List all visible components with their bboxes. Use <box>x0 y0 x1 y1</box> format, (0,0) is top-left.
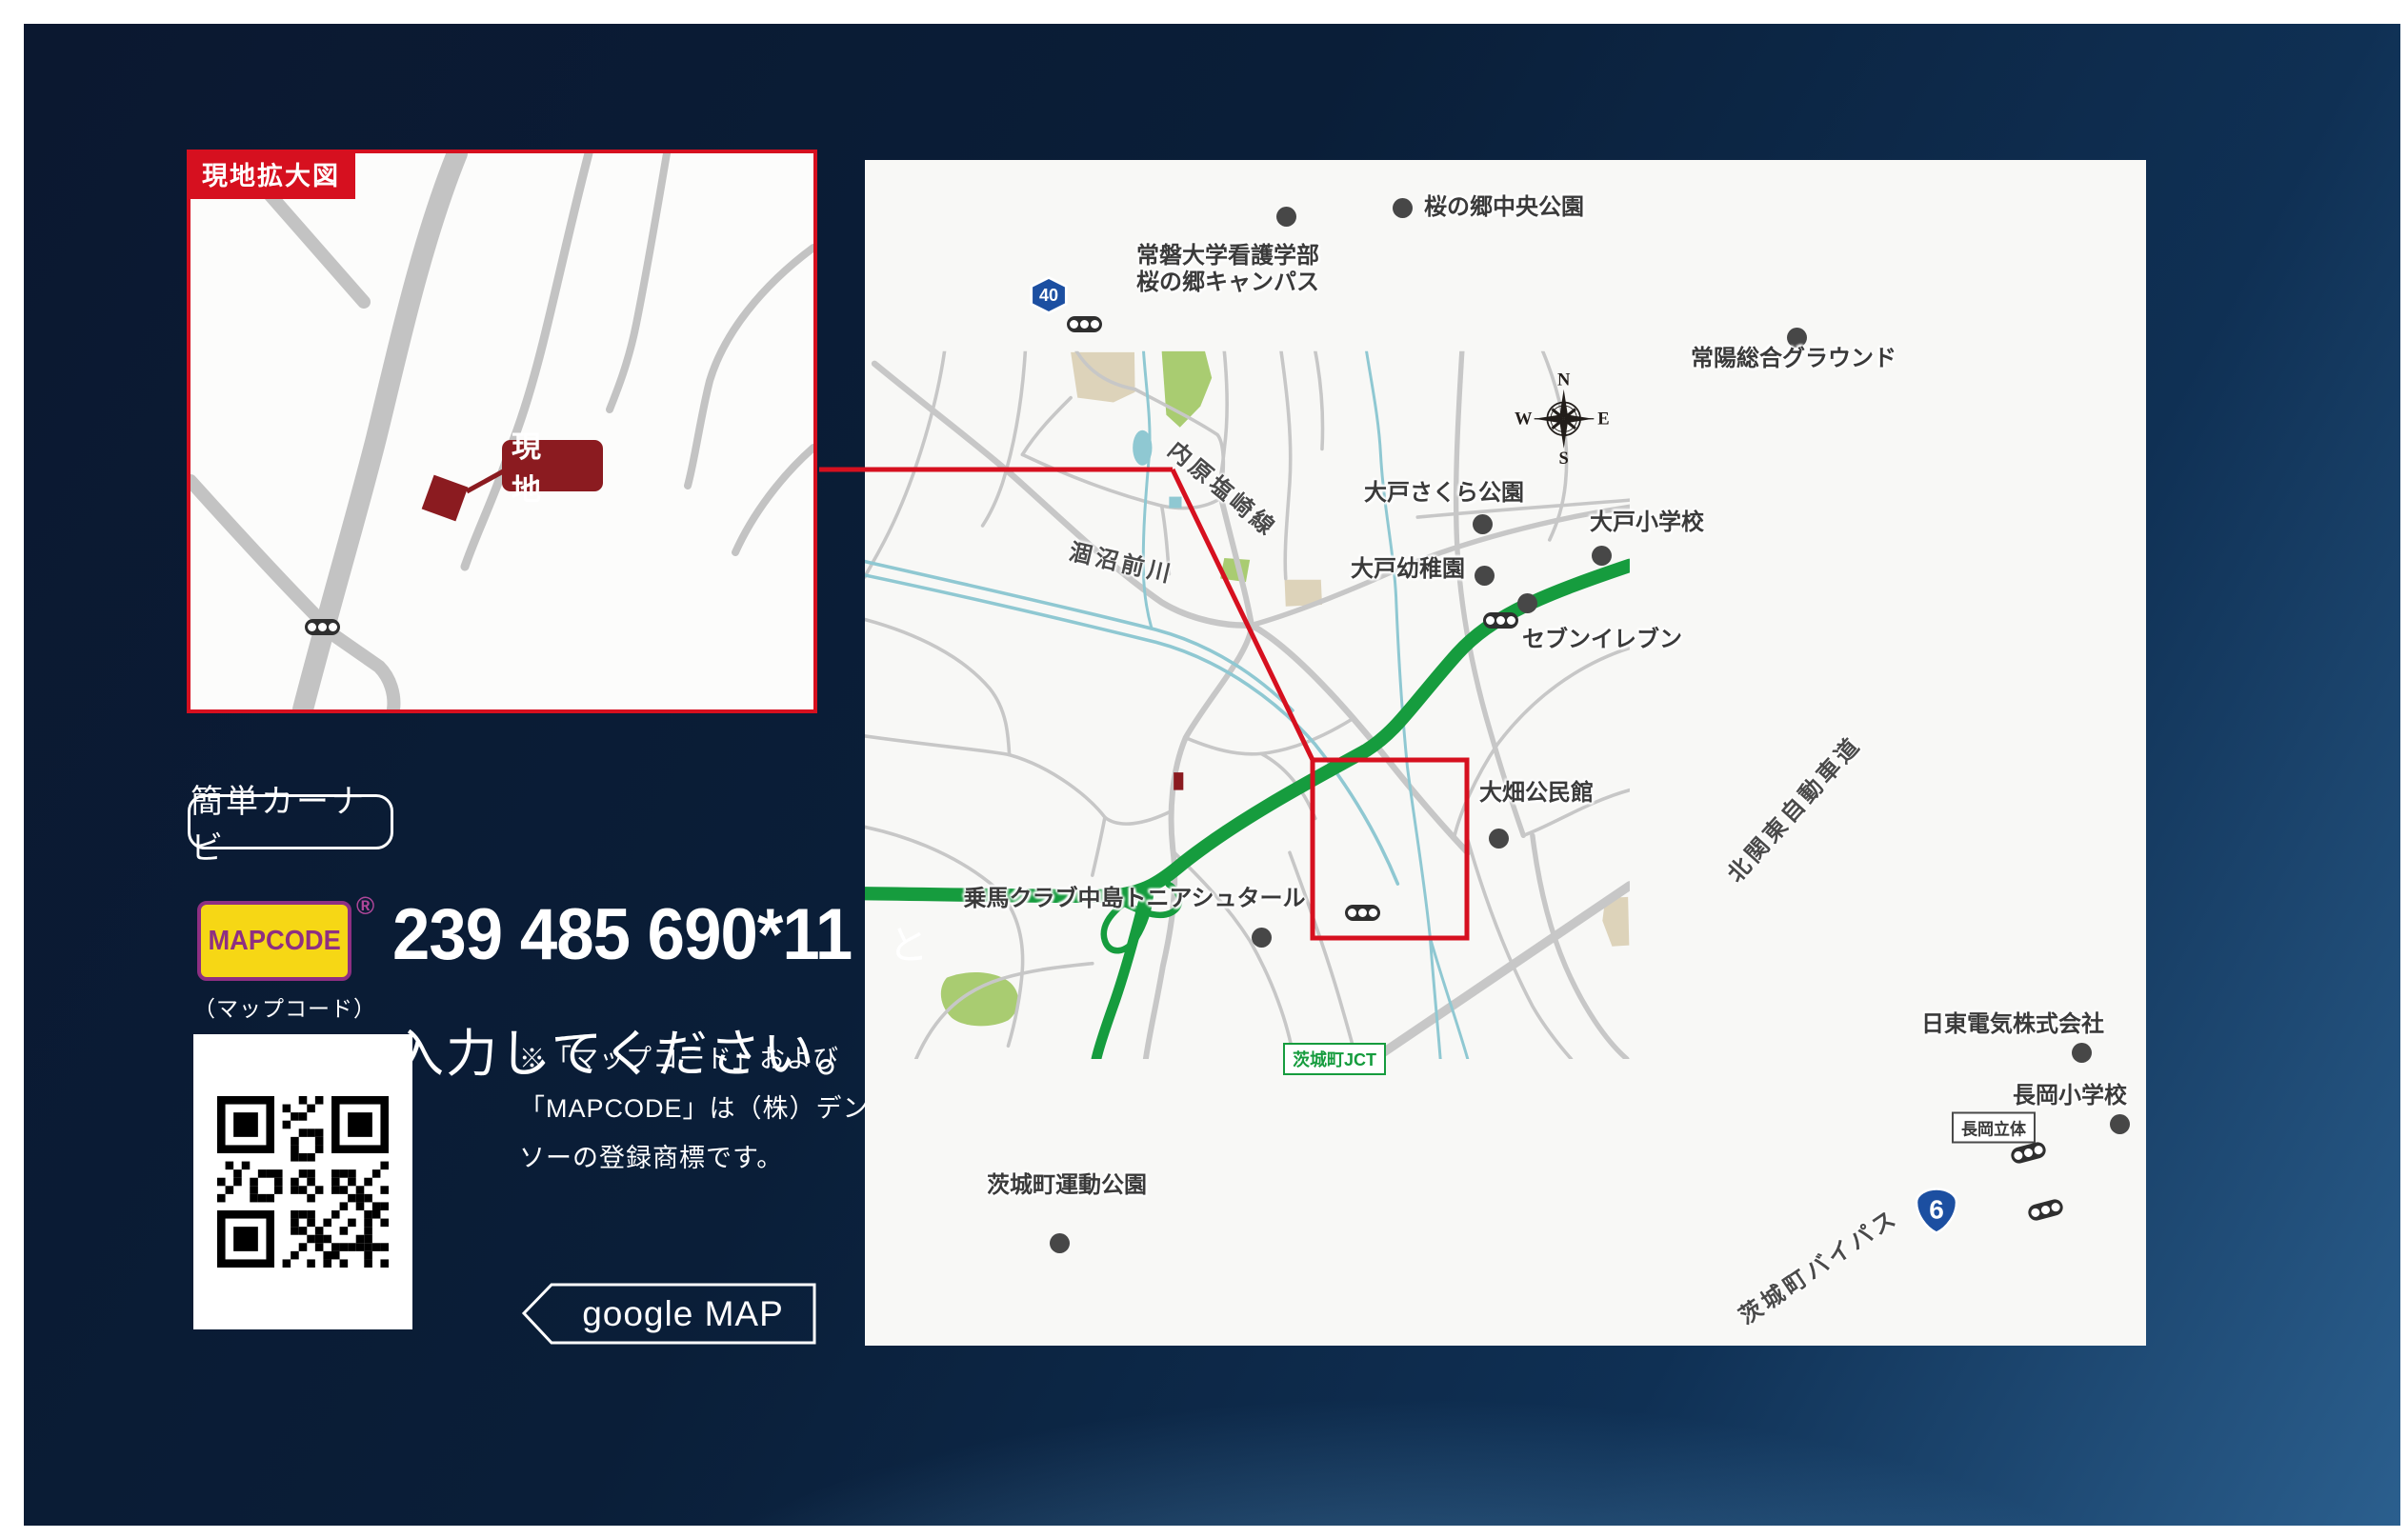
compass-east: E <box>1597 410 1609 429</box>
trademark-line: ソーの登録商標です。 <box>519 1133 870 1183</box>
registered-trademark-icon: ® <box>356 891 374 921</box>
access-map-flyer: N S W E <box>0 0 2408 1538</box>
trademark-line: ※「マップコード」および <box>519 1034 870 1084</box>
trademark-note: ※「マップコード」および 「MAPCODE」は（株）デン ソーの登録商標です。 <box>519 1034 870 1183</box>
qr-code <box>193 1034 412 1329</box>
inset-map: 現地拡大図 現 地 <box>187 150 817 713</box>
inset-title-tag: 現地拡大図 <box>187 150 355 199</box>
mapcode-suffix: と <box>889 913 929 971</box>
compass-north: N <box>1557 371 1571 390</box>
inset-map-graphics <box>191 153 813 709</box>
compass-icon: N S W E <box>1515 371 1610 469</box>
compass-south: S <box>1559 449 1569 469</box>
google-map-button[interactable]: google MAP <box>521 1282 817 1346</box>
mapcode-logo-text: MAPCODE <box>208 926 340 957</box>
major-roads <box>874 351 1630 1059</box>
site-label: 現 地 <box>502 440 603 491</box>
mapcode-value: 239 485 690*11 <box>392 893 852 976</box>
mapcode-value-row: 239 485 690*11 と <box>392 893 929 976</box>
car-navi-badge: 簡単カーナビ <box>188 794 393 849</box>
mapcode-caption: （マップコード） <box>193 990 376 1023</box>
compass-west: W <box>1515 410 1533 429</box>
site-marker-main <box>1174 772 1183 790</box>
mapcode-logo: MAPCODE <box>197 901 351 981</box>
main-map: N S W E <box>865 160 2146 1346</box>
minor-roads <box>865 351 1630 1059</box>
main-map-graphics: N S W E <box>865 160 2146 1346</box>
qr-code-pattern <box>217 1096 389 1268</box>
building-areas <box>1071 352 1629 947</box>
trademark-line: 「MAPCODE」は（株）デン <box>519 1084 870 1133</box>
google-map-button-label: google MAP <box>559 1282 807 1346</box>
